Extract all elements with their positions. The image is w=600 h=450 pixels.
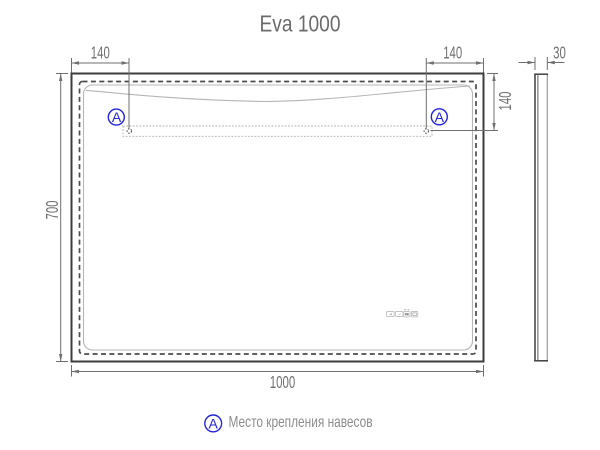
svg-text:A: A xyxy=(435,109,445,125)
svg-text:A: A xyxy=(209,416,219,432)
svg-text:Eva 1000: Eva 1000 xyxy=(260,11,341,37)
svg-text:30: 30 xyxy=(553,42,566,62)
svg-text:700: 700 xyxy=(42,200,62,219)
svg-text:140: 140 xyxy=(495,91,515,110)
svg-text:Место крепления навесов: Место крепления навесов xyxy=(229,414,373,431)
svg-text:A: A xyxy=(112,109,122,125)
svg-text:1000: 1000 xyxy=(270,372,296,392)
svg-text:140: 140 xyxy=(443,42,462,62)
svg-text:140: 140 xyxy=(91,42,110,62)
